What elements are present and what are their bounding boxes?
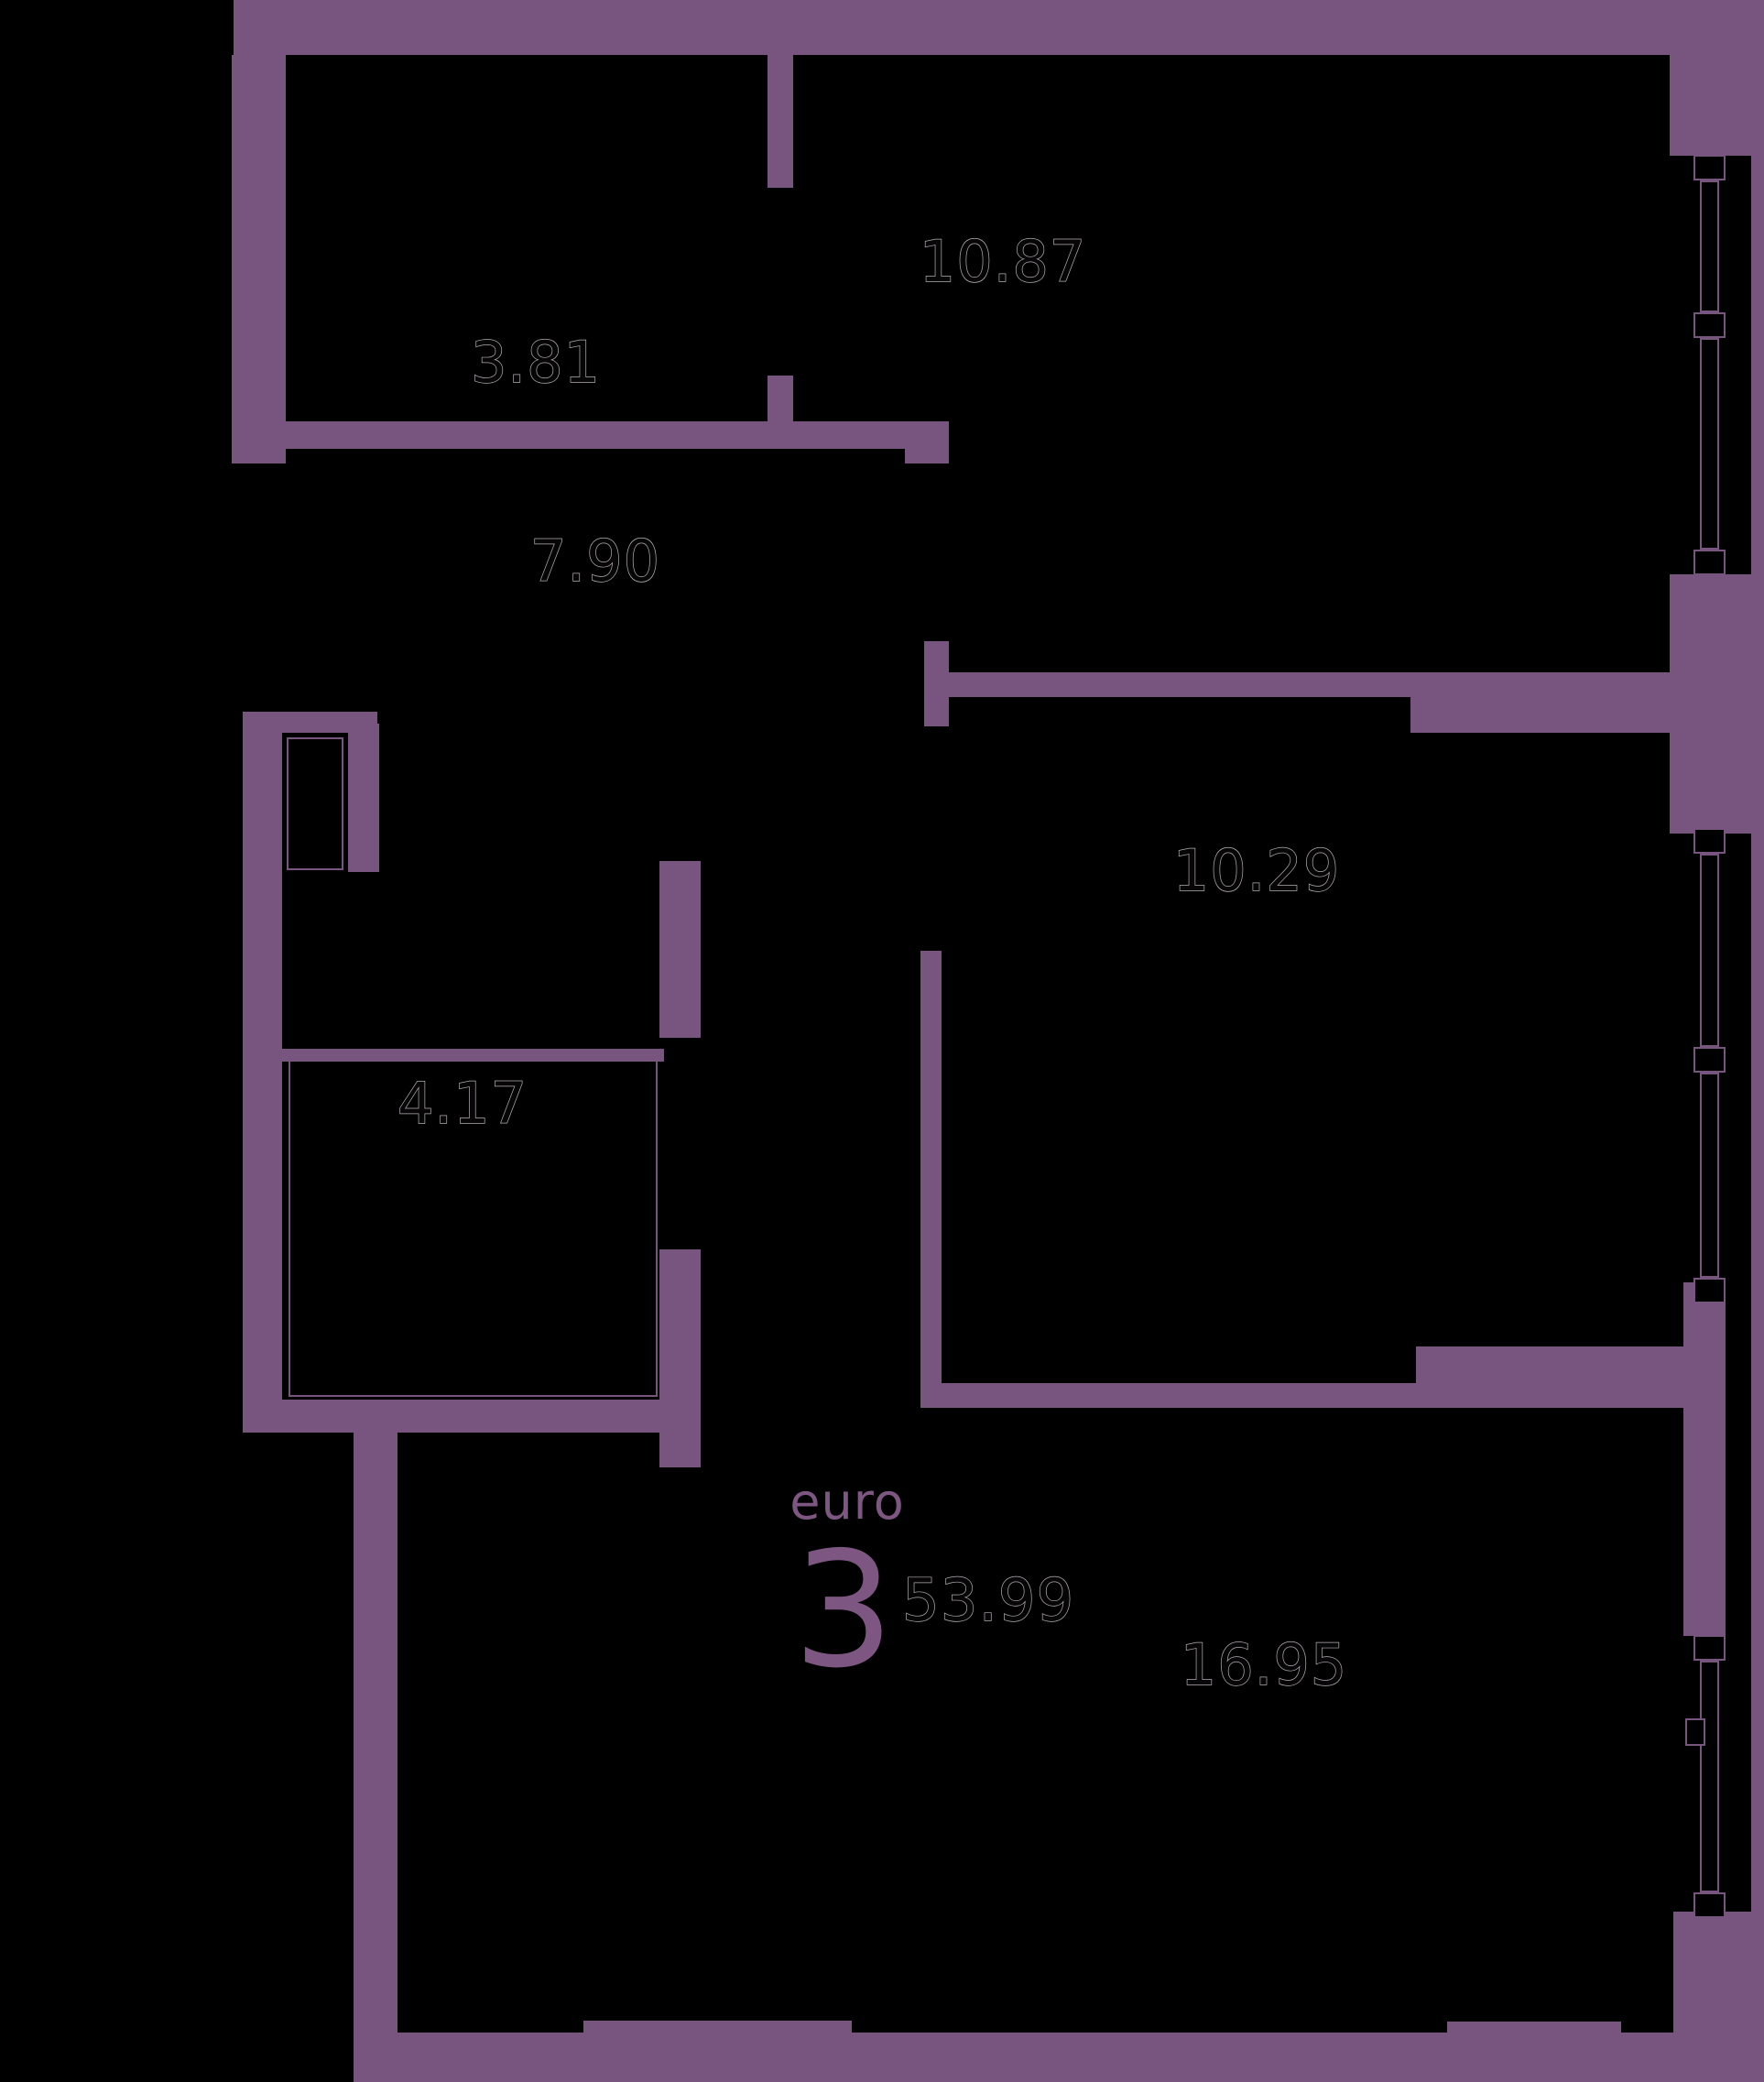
facade-outer-edge (1751, 156, 1764, 1912)
wall-bedroom2-left (920, 951, 942, 1383)
window-2-sill-middle (1694, 1048, 1725, 1072)
window-3-sill-bottom (1694, 1893, 1725, 1917)
wall-bedroom2-bottom-thin (920, 1383, 1416, 1408)
window-2-sash-lower (1701, 1074, 1718, 1277)
wall-wardrobe-divider-lower (768, 376, 793, 449)
shaft-right (348, 724, 379, 872)
wall-bedroom2-top-thin (949, 672, 1410, 697)
room-area-bedroom-top: 10.87 (920, 228, 1087, 295)
window-1-sash-upper (1701, 181, 1718, 311)
window-1-sill-middle (1694, 313, 1725, 337)
wall-bath-right-lower (659, 1249, 701, 1467)
wall-wardrobe-divider-upper (768, 55, 793, 188)
wall-left-lower (354, 1433, 397, 2082)
facade-pier-bottom-right (1673, 1912, 1764, 2082)
window-3-sash (1701, 1662, 1718, 1891)
wall-bottom-step-right (1447, 2022, 1621, 2033)
facade-pier-lower (1683, 1282, 1726, 1636)
thin-outlines (288, 738, 657, 1396)
walls (232, 0, 1764, 2082)
wall-stub-corridor-right (924, 641, 949, 726)
plan-total-area: 53.99 (902, 1567, 1074, 1635)
window-1-sill-bottom (1694, 550, 1725, 574)
window-1-sill-top (1694, 156, 1725, 180)
wall-bath-bottom (243, 1400, 696, 1433)
floor-plan: 3.81 10.87 7.90 10.29 4.17 16.95 euro 3 … (0, 0, 1764, 2082)
room-area-bathroom: 4.17 (397, 1070, 528, 1137)
floor-plan-svg: 3.81 10.87 7.90 10.29 4.17 16.95 euro 3 … (0, 0, 1764, 2082)
wall-bedroom2-top-thick (1410, 672, 1670, 733)
facade-pier-middle (1670, 574, 1764, 834)
wall-top (234, 0, 1673, 55)
wall-left-middle (243, 712, 282, 1403)
windows (1686, 156, 1725, 1917)
wall-bottom (354, 2033, 1764, 2082)
wall-bath-right-upper (659, 861, 701, 1038)
wall-left-upper (232, 55, 286, 463)
window-1-sash-lower (1701, 339, 1718, 549)
wall-bottom-step-left (583, 2021, 852, 2033)
wall-corridor-top-step (905, 449, 949, 463)
room-area-wardrobe: 3.81 (471, 329, 601, 396)
window-2-sash-upper (1701, 855, 1718, 1046)
wall-corner-top-right (1670, 0, 1764, 156)
window-2-sill-top (1694, 829, 1725, 853)
room-area-living: 16.95 (1181, 1631, 1348, 1698)
room-area-hall: 7.90 (530, 528, 660, 594)
window-3-latch (1686, 1719, 1704, 1745)
window-2-sill-bottom (1694, 1279, 1725, 1303)
wall-bedroom2-bottom-thick (1416, 1346, 1683, 1408)
room-area-bedroom-middle: 10.29 (1173, 837, 1341, 904)
shaft-inner-outline (288, 738, 343, 869)
plan-rooms-count: 3 (793, 1518, 895, 1704)
plan-title: euro 3 53.99 (789, 1473, 1074, 1704)
wall-corridor-top (286, 421, 949, 449)
window-3-sill-top (1694, 1636, 1725, 1660)
